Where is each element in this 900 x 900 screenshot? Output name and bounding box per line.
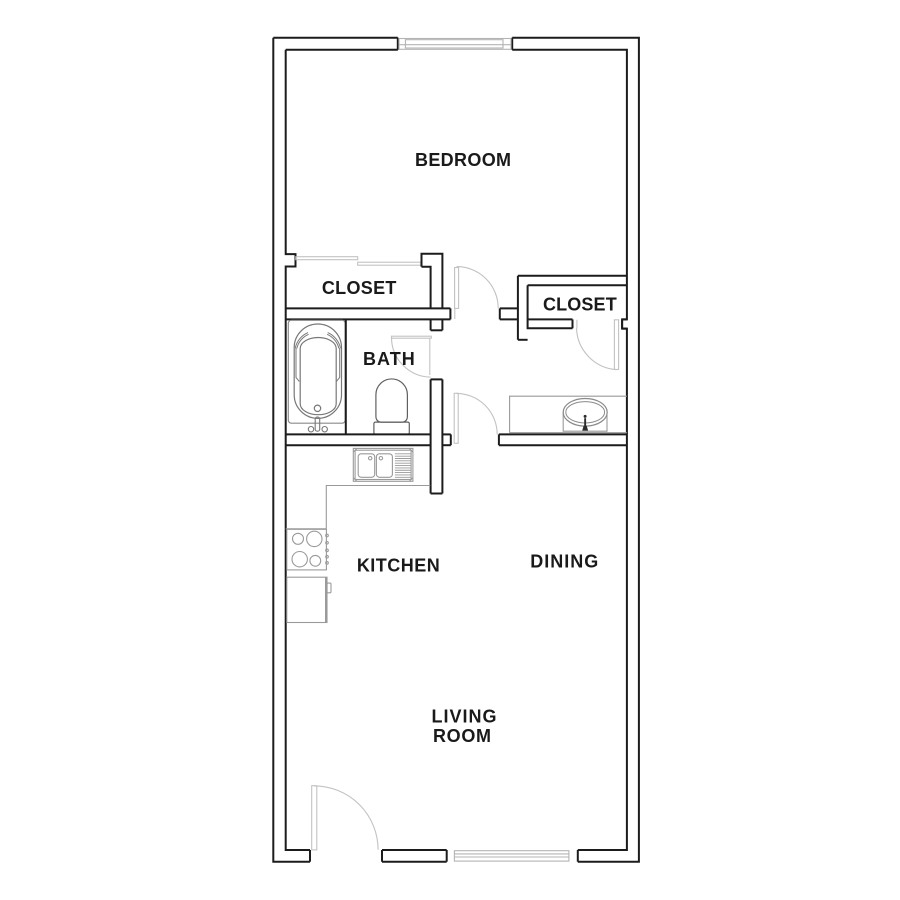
svg-text:LIVING: LIVING [432,707,498,727]
svg-text:DINING: DINING [530,552,599,572]
svg-text:BEDROOM: BEDROOM [415,150,511,170]
svg-text:ROOM: ROOM [433,726,492,746]
svg-text:CLOSET: CLOSET [543,294,617,314]
svg-text:BATH: BATH [363,349,416,369]
svg-text:CLOSET: CLOSET [322,278,397,298]
svg-text:KITCHEN: KITCHEN [357,556,440,576]
